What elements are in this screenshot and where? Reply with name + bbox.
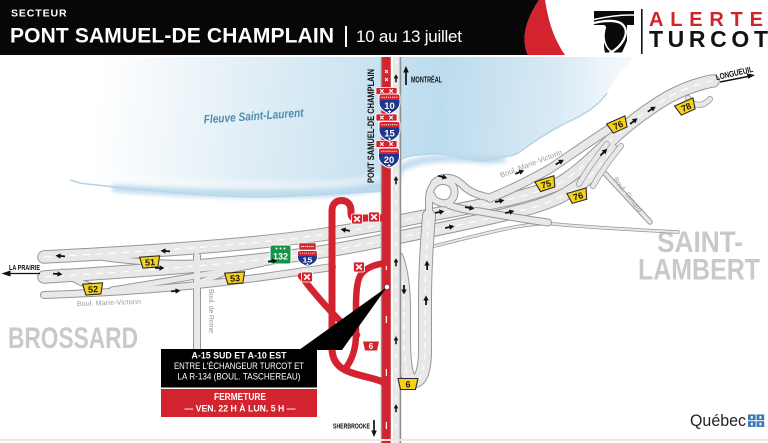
svg-text:53: 53 bbox=[230, 273, 241, 284]
svg-text:Boul. de Rome: Boul. de Rome bbox=[207, 289, 214, 333]
svg-text:SECTEUR: SECTEUR bbox=[11, 8, 67, 20]
svg-text:51: 51 bbox=[145, 257, 156, 268]
svg-text:LAMBERT: LAMBERT bbox=[638, 254, 760, 287]
svg-text:10 au 13 juillet: 10 au 13 juillet bbox=[356, 27, 462, 46]
svg-text:PONT SAMUEL-DE CHAMPLAIN: PONT SAMUEL-DE CHAMPLAIN bbox=[10, 25, 334, 48]
svg-text:MONTRÉAL: MONTRÉAL bbox=[411, 76, 442, 85]
svg-text:ENTRE L'ÉCHANGEUR TURCOT ET: ENTRE L'ÉCHANGEUR TURCOT ET bbox=[174, 361, 304, 372]
svg-text:FERMETURE: FERMETURE bbox=[214, 392, 266, 403]
svg-text:6: 6 bbox=[405, 379, 410, 389]
svg-text:15: 15 bbox=[302, 256, 312, 264]
svg-text:A-15 SUD ET A-10 EST: A-15 SUD ET A-10 EST bbox=[192, 351, 287, 362]
svg-text:6: 6 bbox=[369, 342, 374, 351]
svg-text:52: 52 bbox=[88, 284, 99, 295]
svg-text:PONT SAMUEL-DE CHAMPLAIN: PONT SAMUEL-DE CHAMPLAIN bbox=[366, 69, 377, 183]
svg-text:SHERBROOKE: SHERBROOKE bbox=[333, 422, 370, 431]
svg-text:Québec: Québec bbox=[690, 411, 746, 430]
svg-text:BROSSARD: BROSSARD bbox=[8, 322, 138, 355]
svg-text:— VEN. 22 H À LUN. 5 H —: — VEN. 22 H À LUN. 5 H — bbox=[185, 404, 296, 415]
svg-text:LA PRAIRIE: LA PRAIRIE bbox=[9, 263, 40, 272]
svg-text:LA R-134 (BOUL. TASCHEREAU): LA R-134 (BOUL. TASCHEREAU) bbox=[178, 372, 301, 383]
